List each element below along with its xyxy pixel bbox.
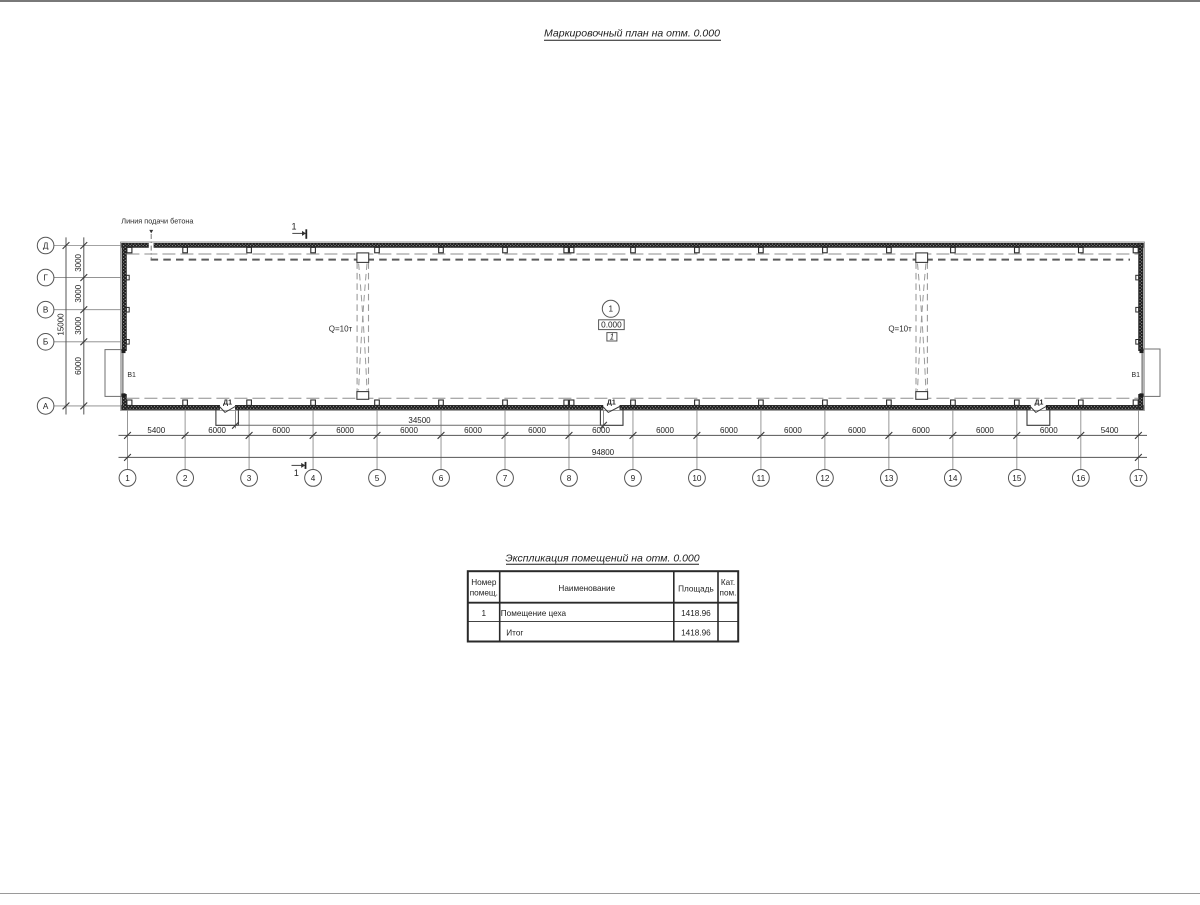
svg-text:1: 1 (291, 222, 296, 232)
svg-text:Итог: Итог (506, 629, 523, 638)
svg-text:14: 14 (948, 474, 958, 483)
svg-text:1: 1 (609, 305, 614, 314)
svg-text:6000: 6000 (528, 426, 546, 435)
svg-text:1418.96: 1418.96 (681, 609, 711, 618)
svg-text:Д1: Д1 (1034, 400, 1043, 407)
svg-text:3000: 3000 (74, 316, 83, 334)
svg-text:6000: 6000 (74, 357, 83, 375)
svg-text:Д: Д (43, 241, 49, 250)
svg-text:Кат.: Кат. (721, 578, 735, 587)
svg-text:9: 9 (631, 474, 636, 483)
svg-text:Маркировочный план на отм. 0.0: Маркировочный план на отм. 0.000 (544, 28, 720, 40)
svg-text:13: 13 (884, 474, 894, 483)
svg-text:Д1: Д1 (223, 400, 232, 407)
svg-text:6000: 6000 (400, 426, 418, 435)
svg-text:94800: 94800 (592, 448, 615, 457)
svg-text:6000: 6000 (912, 426, 930, 435)
svg-text:4: 4 (311, 474, 316, 483)
svg-text:В1: В1 (127, 372, 136, 379)
svg-text:6000: 6000 (784, 426, 802, 435)
svg-text:15: 15 (1012, 474, 1022, 483)
svg-text:Наименование: Наименование (558, 584, 615, 593)
svg-text:В: В (43, 306, 49, 315)
svg-text:В1: В1 (1131, 372, 1140, 379)
svg-text:3000: 3000 (74, 284, 83, 302)
svg-text:6000: 6000 (656, 426, 674, 435)
svg-text:3: 3 (247, 474, 252, 483)
svg-text:1: 1 (125, 474, 130, 483)
svg-text:12: 12 (820, 474, 830, 483)
svg-text:1418.96: 1418.96 (681, 629, 711, 638)
svg-text:17: 17 (1134, 474, 1144, 483)
svg-text:пом.: пом. (720, 589, 737, 598)
svg-text:1: 1 (294, 468, 299, 478)
svg-text:5400: 5400 (147, 426, 165, 435)
svg-text:Q=10т: Q=10т (329, 324, 353, 333)
svg-text:6000: 6000 (848, 426, 866, 435)
svg-text:34500: 34500 (408, 416, 431, 425)
svg-text:5400: 5400 (1101, 426, 1119, 435)
svg-text:6000: 6000 (336, 426, 354, 435)
svg-text:А: А (43, 402, 49, 411)
svg-text:15000: 15000 (56, 313, 65, 336)
svg-text:Экспликация помещений на отм.: Экспликация помещений на отм. 0.000 (505, 552, 699, 564)
svg-text:6000: 6000 (208, 426, 226, 435)
svg-text:7: 7 (503, 474, 508, 483)
svg-text:6000: 6000 (464, 426, 482, 435)
svg-text:10: 10 (692, 474, 702, 483)
svg-text:Номер: Номер (471, 578, 497, 587)
svg-text:6000: 6000 (720, 426, 738, 435)
svg-text:6000: 6000 (272, 426, 290, 435)
svg-text:Д1: Д1 (607, 400, 616, 407)
svg-text:1: 1 (610, 332, 614, 341)
svg-text:6: 6 (439, 474, 444, 483)
svg-text:6000: 6000 (1040, 426, 1058, 435)
svg-text:16: 16 (1076, 474, 1086, 483)
svg-text:Линия подачи бетона: Линия подачи бетона (121, 216, 194, 225)
svg-text:1: 1 (482, 609, 487, 618)
svg-text:Г: Г (43, 274, 48, 283)
svg-text:Q=10т: Q=10т (888, 324, 912, 333)
svg-text:6000: 6000 (976, 426, 994, 435)
svg-text:3000: 3000 (74, 253, 83, 271)
svg-text:8: 8 (567, 474, 572, 483)
svg-text:0.000: 0.000 (601, 320, 622, 329)
svg-text:Помещение цеха: Помещение цеха (501, 609, 567, 618)
svg-text:5: 5 (375, 474, 380, 483)
svg-text:11: 11 (757, 474, 766, 483)
svg-text:Площадь: Площадь (678, 585, 714, 594)
svg-text:Б: Б (43, 338, 48, 347)
svg-text:2: 2 (183, 474, 188, 483)
svg-text:помещ.: помещ. (470, 589, 498, 598)
